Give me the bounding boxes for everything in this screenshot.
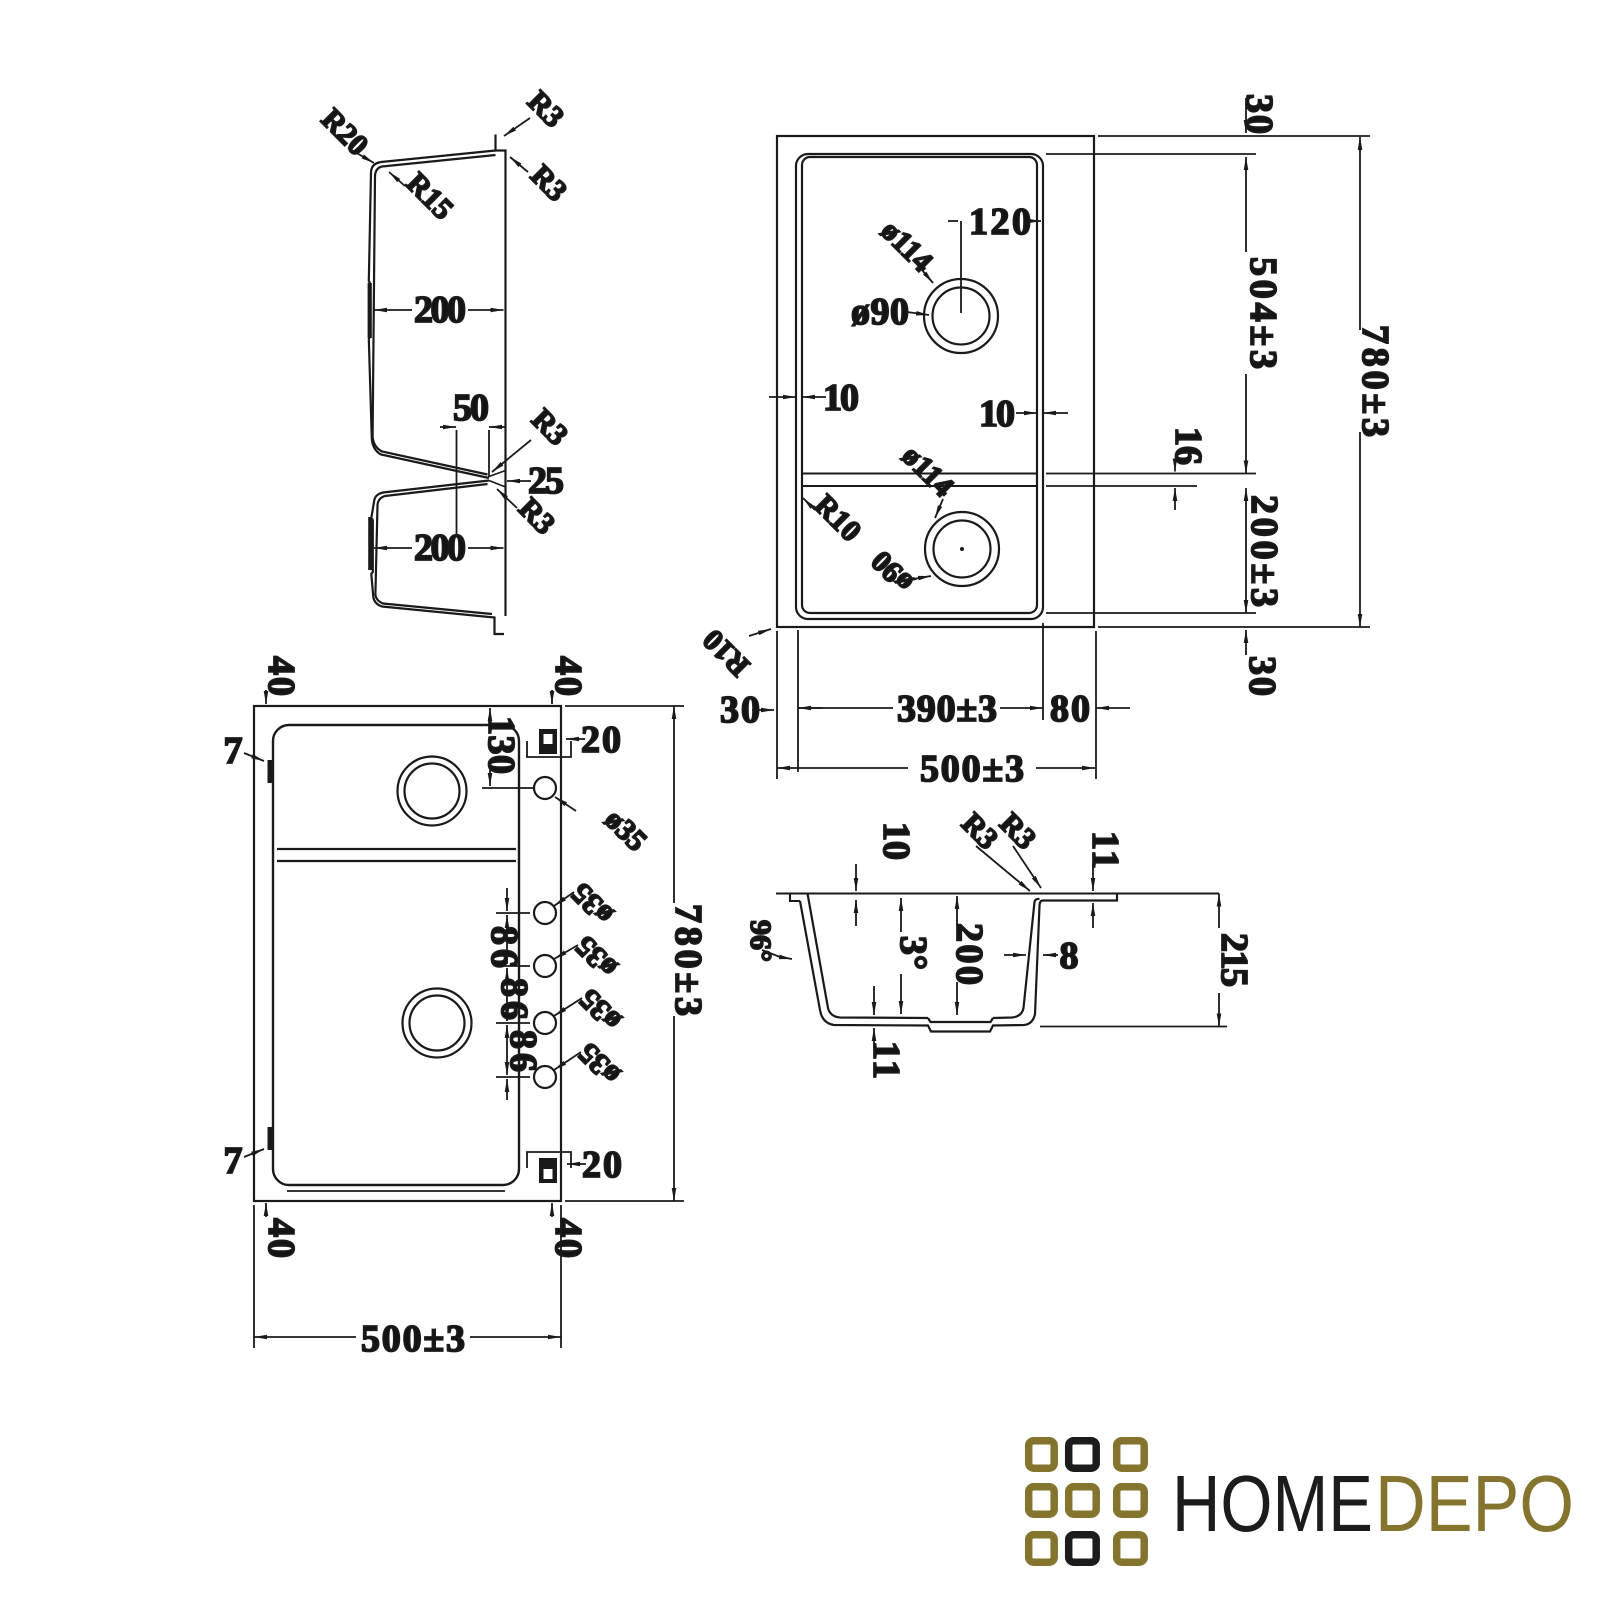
svg-text:ø35: ø35 bbox=[565, 876, 620, 931]
svg-text:504±3: 504±3 bbox=[1242, 257, 1284, 369]
svg-text:R3: R3 bbox=[524, 159, 573, 208]
svg-text:50: 50 bbox=[453, 387, 489, 429]
svg-text:200: 200 bbox=[948, 923, 990, 985]
svg-text:R10: R10 bbox=[696, 623, 756, 683]
svg-text:80: 80 bbox=[1050, 688, 1090, 730]
svg-text:30: 30 bbox=[1241, 656, 1283, 696]
svg-text:ø114: ø114 bbox=[895, 439, 960, 504]
svg-text:200: 200 bbox=[414, 527, 466, 569]
svg-text:R3: R3 bbox=[525, 403, 574, 452]
svg-text:215: 215 bbox=[1213, 933, 1255, 987]
svg-text:16: 16 bbox=[1167, 427, 1209, 465]
svg-text:780±3: 780±3 bbox=[1354, 325, 1396, 437]
svg-text:500±3: 500±3 bbox=[361, 1318, 465, 1360]
svg-text:390±3: 390±3 bbox=[897, 688, 997, 730]
svg-text:ø90: ø90 bbox=[851, 291, 909, 333]
svg-text:R3: R3 bbox=[521, 85, 570, 134]
svg-text:ø90: ø90 bbox=[865, 544, 920, 599]
svg-text:200: 200 bbox=[414, 289, 466, 331]
svg-text:DEPO: DEPO bbox=[1375, 1459, 1574, 1548]
svg-text:ø35: ø35 bbox=[573, 982, 628, 1037]
svg-text:86: 86 bbox=[502, 1030, 544, 1072]
svg-text:R15: R15 bbox=[400, 166, 460, 226]
svg-text:ø35: ø35 bbox=[598, 803, 653, 858]
svg-text:40: 40 bbox=[547, 1218, 589, 1258]
svg-text:R10: R10 bbox=[808, 488, 868, 548]
svg-text:20: 20 bbox=[581, 719, 621, 761]
svg-text:ø35: ø35 bbox=[569, 929, 624, 984]
svg-text:R3: R3 bbox=[993, 807, 1042, 856]
svg-text:40: 40 bbox=[260, 1218, 302, 1258]
svg-text:120: 120 bbox=[969, 201, 1031, 243]
svg-text:20: 20 bbox=[582, 1144, 622, 1186]
svg-text:ø114: ø114 bbox=[874, 214, 939, 279]
svg-text:40: 40 bbox=[547, 656, 589, 696]
svg-text:11: 11 bbox=[1084, 831, 1126, 869]
svg-text:30: 30 bbox=[1238, 94, 1280, 134]
svg-text:200±3: 200±3 bbox=[1243, 495, 1285, 607]
svg-text:130: 130 bbox=[480, 716, 522, 774]
svg-text:7: 7 bbox=[224, 730, 243, 772]
svg-text:ø35: ø35 bbox=[572, 1036, 627, 1091]
svg-text:10: 10 bbox=[823, 377, 859, 419]
svg-text:780±3: 780±3 bbox=[667, 904, 709, 1016]
svg-text:8: 8 bbox=[1060, 935, 1079, 977]
svg-text:HOME: HOME bbox=[1172, 1459, 1373, 1548]
svg-text:10: 10 bbox=[875, 822, 917, 860]
svg-text:3°: 3° bbox=[892, 936, 934, 970]
svg-text:96°: 96° bbox=[744, 920, 777, 962]
svg-text:R20: R20 bbox=[315, 102, 375, 162]
svg-text:86: 86 bbox=[493, 978, 535, 1020]
svg-text:7: 7 bbox=[224, 1140, 243, 1182]
svg-text:500±3: 500±3 bbox=[920, 748, 1024, 790]
svg-text:10: 10 bbox=[979, 393, 1015, 435]
svg-text:11: 11 bbox=[865, 1041, 907, 1079]
